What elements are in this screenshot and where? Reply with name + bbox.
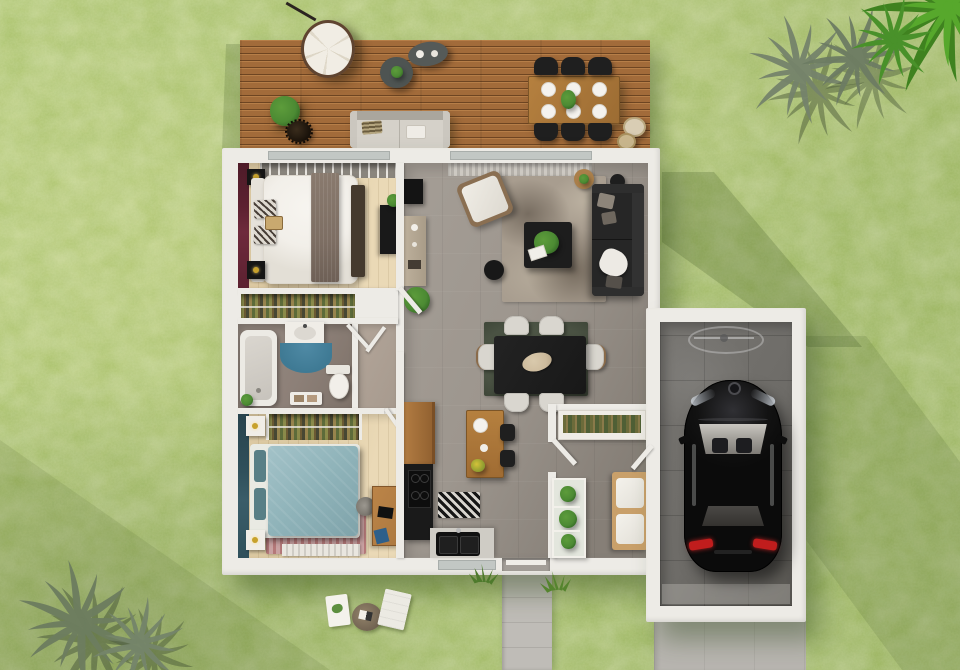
cabinet-plant [560, 486, 576, 502]
kitchen-counter-cooktop [404, 464, 433, 540]
cushion [597, 192, 616, 209]
hood-seam [698, 418, 768, 421]
car-seat [736, 438, 752, 453]
plate [541, 104, 556, 119]
foot-chest [351, 185, 365, 277]
bar-stool [500, 424, 515, 441]
cooktop [408, 470, 431, 508]
tall-cabinet [404, 402, 435, 464]
garage-door-sill [662, 584, 790, 604]
dining-chair [539, 316, 564, 335]
sofa-seam [592, 239, 632, 240]
dining-chair [504, 393, 529, 412]
magazine [358, 610, 373, 622]
open-closet-clothes [238, 294, 358, 320]
interior-wall [396, 163, 404, 290]
sink-counter [430, 528, 494, 558]
kitchen-island [466, 410, 504, 478]
burner [411, 474, 420, 483]
shelf-line [554, 506, 580, 508]
bench-cushion [616, 478, 644, 508]
armchair-cushion [460, 174, 509, 223]
windshield [697, 424, 769, 454]
toilet-bowl [329, 373, 349, 399]
outdoor-chair [561, 57, 585, 75]
cup [431, 50, 439, 58]
breakfast-tray [265, 216, 283, 230]
outdoor-chair [534, 57, 558, 75]
plate [473, 418, 488, 433]
front-door-recess [502, 558, 550, 571]
toilet [326, 365, 350, 399]
burner [420, 491, 429, 500]
bed-runner [311, 173, 339, 282]
nightstand [247, 261, 265, 279]
outdoor-chair [534, 123, 558, 141]
open-book [529, 246, 546, 260]
burner [411, 491, 420, 500]
sink-basin [439, 536, 458, 554]
plate [541, 82, 556, 97]
leaf-print [331, 603, 343, 613]
wood-side-table [574, 169, 594, 189]
roof-antenna [728, 382, 741, 395]
cup [412, 242, 417, 247]
car [684, 380, 782, 572]
sofa-backrest [350, 111, 450, 120]
faucet [303, 324, 307, 328]
outdoor-dining-table [528, 76, 620, 124]
shelf-line [554, 530, 580, 532]
cabinet-plant [559, 510, 577, 528]
white-vase [411, 224, 418, 231]
teal-duvet [268, 446, 358, 536]
bathtub-drain [256, 388, 261, 393]
black-stool [484, 260, 504, 280]
side-window [692, 444, 696, 506]
bathroom-plant [241, 394, 253, 406]
white-nightstand [246, 416, 265, 436]
kitchen-chevron-rug [438, 492, 480, 518]
dining-chair [585, 344, 606, 370]
cup [415, 50, 424, 59]
sink-basin [460, 536, 479, 554]
side-window [770, 444, 774, 506]
living-window [450, 151, 592, 160]
entry-wall [548, 404, 556, 442]
sideboard [404, 216, 426, 286]
window-curtain [448, 163, 592, 176]
cushion [601, 211, 617, 225]
double-sink [436, 532, 480, 556]
sofa-armrest [350, 111, 357, 148]
picnic-towel [325, 594, 351, 627]
round-mat [352, 603, 382, 631]
floorplan-render [0, 0, 960, 670]
outdoor-chair [561, 123, 585, 141]
corner-sofa [592, 184, 644, 296]
book-stack [408, 260, 421, 269]
rear-window [702, 506, 764, 526]
cup [480, 444, 488, 452]
bedroom-window [268, 151, 390, 160]
towel [294, 395, 304, 402]
cushion [605, 275, 623, 289]
vanity-sink [285, 322, 324, 344]
sink-basin [294, 326, 316, 340]
entry-bench [612, 472, 648, 550]
striped-pillow [361, 120, 382, 135]
sofa-seam [399, 120, 400, 148]
teal-pillow [254, 450, 266, 482]
coffee-table [524, 222, 572, 268]
plate [592, 82, 607, 97]
yellow-flowers [471, 459, 485, 472]
sofa-armrest [443, 111, 450, 148]
radiator [282, 544, 360, 556]
dining-table [494, 336, 586, 394]
bar-stool [500, 450, 515, 467]
teal-pillow [254, 488, 266, 520]
car-seat [712, 438, 728, 453]
rear-trim [714, 550, 752, 554]
deck-side-table-large [380, 57, 413, 88]
tv-cabinet [404, 179, 423, 204]
dining-chair [504, 316, 529, 335]
front-door [506, 560, 546, 565]
open-closet-clothes [266, 414, 362, 440]
outdoor-chair [588, 123, 612, 141]
sofa-armrest [592, 184, 644, 193]
table-lamp [252, 423, 258, 429]
parasol [301, 20, 355, 78]
laptop [377, 506, 393, 519]
interior-wall [396, 352, 404, 558]
burner [420, 474, 429, 483]
garage-ceiling-light [688, 326, 764, 354]
faucet [456, 528, 461, 533]
towel [307, 395, 317, 402]
light-hub [720, 334, 728, 342]
outdoor-sofa [350, 111, 450, 148]
table-centerpiece-plant [561, 90, 576, 109]
outdoor-chair [588, 57, 612, 75]
table-lamp [252, 537, 258, 543]
deco-tray [406, 125, 426, 139]
entry-plant-console [558, 410, 646, 440]
glass-display-cabinet [552, 478, 586, 558]
sofa-back [632, 184, 644, 296]
wicker-basket [287, 121, 311, 142]
table-lamp [253, 267, 259, 273]
blue-folder [373, 528, 389, 545]
bench-cushion [616, 514, 644, 544]
plate [592, 104, 607, 119]
table-centerpiece [520, 349, 554, 374]
white-nightstand [246, 530, 265, 550]
cabinet-plant [561, 534, 576, 549]
towel-bench [290, 392, 322, 405]
dried-plants [563, 415, 641, 433]
front-walkway [502, 572, 552, 670]
kitchen-window [438, 560, 496, 570]
